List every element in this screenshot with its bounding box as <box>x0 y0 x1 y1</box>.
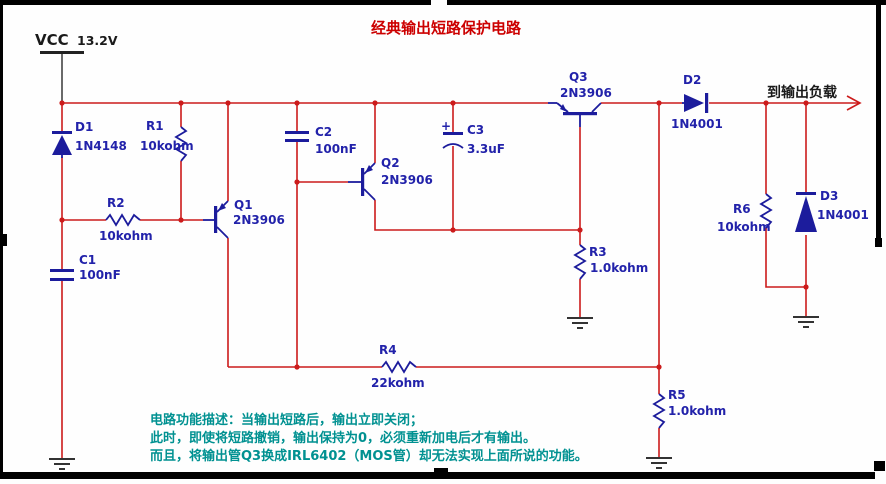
wires <box>62 103 860 459</box>
r3-ref: R3 <box>589 245 607 259</box>
circuit-schematic: VCC 13.2V D1 1N4148 R1 10kohm R2 10kohm … <box>0 0 886 484</box>
r1-value: 10kohm <box>140 139 194 153</box>
r2-ref: R2 <box>107 196 125 210</box>
diode-d2: D2 1N4001 <box>671 73 723 131</box>
c3-value: 3.3uF <box>467 142 505 156</box>
description-line-1: 电路功能描述：当输出短路后，输出立即关闭； <box>150 412 423 428</box>
r5-ref: R5 <box>668 388 686 402</box>
selection-handle-bottom <box>434 468 448 478</box>
r6-value: 10kohm <box>717 220 771 234</box>
output-load-label: 到输出负载 <box>767 84 837 101</box>
ground-icon-r5 <box>646 458 672 468</box>
q2-ref: Q2 <box>381 156 400 170</box>
c1-ref: C1 <box>79 253 96 267</box>
r6-ref: R6 <box>733 202 751 216</box>
transistor-q3: Q3 2N3906 <box>548 70 612 127</box>
q3-ref: Q3 <box>569 70 588 84</box>
ground-icon-d3 <box>793 317 819 327</box>
page-title: 经典输出短路保护电路 <box>371 19 522 37</box>
transistor-q2: Q2 2N3906 <box>348 156 433 200</box>
c2-ref: C2 <box>315 125 332 139</box>
resistor-r6: R6 10kohm <box>717 194 771 234</box>
q1-value: 2N3906 <box>233 213 285 227</box>
r4-value: 22kohm <box>371 376 425 390</box>
resistor-r1: R1 10kohm <box>140 119 194 161</box>
r4-ref: R4 <box>379 343 397 357</box>
c3-ref: C3 <box>467 123 484 137</box>
c3-polarity: + <box>441 119 451 133</box>
r5-value: 1.0kohm <box>668 404 726 418</box>
transistor-q1: Q1 2N3906 <box>203 198 285 238</box>
d3-value: 1N4001 <box>817 208 869 222</box>
schematic-canvas: VCC 13.2V D1 1N4148 R1 10kohm R2 10kohm … <box>0 0 886 484</box>
d1-value: 1N4148 <box>75 139 127 153</box>
d1-ref: D1 <box>75 120 93 134</box>
capacitor-c2: C2 100nF <box>285 125 357 156</box>
resistor-r3: R3 1.0kohm <box>575 245 648 279</box>
d3-ref: D3 <box>820 189 838 203</box>
resistor-r5: R5 1.0kohm <box>654 388 726 428</box>
diode-d3: D3 1N4001 <box>795 189 869 232</box>
ground-icon-r3 <box>567 318 593 328</box>
r3-value: 1.0kohm <box>590 261 648 275</box>
selection-handle-right <box>875 238 882 247</box>
capacitor-c1: C1 100nF <box>50 253 121 282</box>
selection-handle-left <box>0 234 7 246</box>
capacitor-c3: + C3 3.3uF <box>441 119 505 156</box>
ground-icon-left <box>49 459 75 469</box>
q1-ref: Q1 <box>234 198 253 212</box>
vcc-power-symbol: VCC 13.2V <box>35 31 118 103</box>
d2-value: 1N4001 <box>671 117 723 131</box>
selection-handle-bottom-right <box>874 461 885 471</box>
vcc-label: VCC <box>35 31 69 49</box>
r2-value: 10kohm <box>99 229 153 243</box>
r1-ref: R1 <box>146 119 164 133</box>
vcc-voltage: 13.2V <box>77 33 118 48</box>
diode-d1: D1 1N4148 <box>52 120 127 158</box>
c2-value: 100nF <box>315 142 357 156</box>
circuit-description: 电路功能描述：当输出短路后，输出立即关闭； 此时，即使将短路撤销，输出保持为0，… <box>150 412 588 464</box>
d2-ref: D2 <box>683 73 701 87</box>
description-line-2: 此时，即使将短路撤销，输出保持为0，必须重新加电后才有输出。 <box>150 430 536 446</box>
c1-value: 100nF <box>79 268 121 282</box>
q2-value: 2N3906 <box>381 173 433 187</box>
q3-value: 2N3906 <box>560 86 612 100</box>
description-line-3: 而且，将输出管Q3换成IRL6402（MOS管）却无法实现上面所说的功能。 <box>150 448 588 464</box>
